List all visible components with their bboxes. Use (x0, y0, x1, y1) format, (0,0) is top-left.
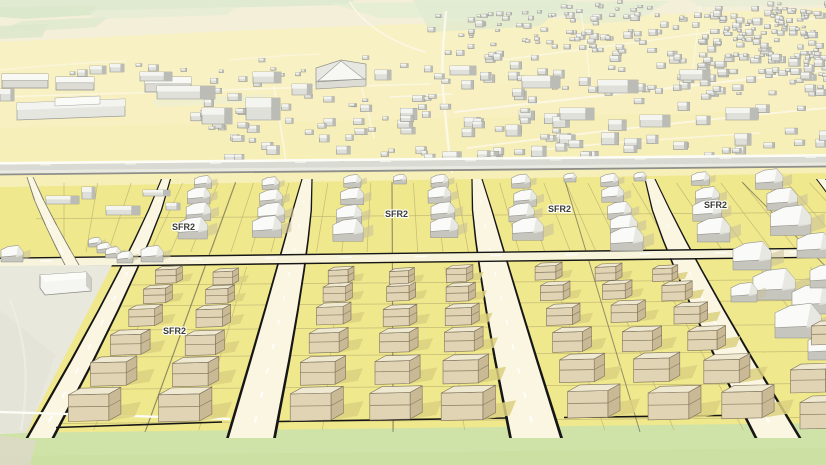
svg-text:SFR2: SFR2 (172, 222, 195, 232)
svg-text:SFR2: SFR2 (704, 200, 727, 210)
svg-text:SFR2: SFR2 (385, 209, 408, 219)
svg-text:SFR2: SFR2 (163, 326, 186, 336)
svg-text:SFR2: SFR2 (548, 204, 571, 214)
